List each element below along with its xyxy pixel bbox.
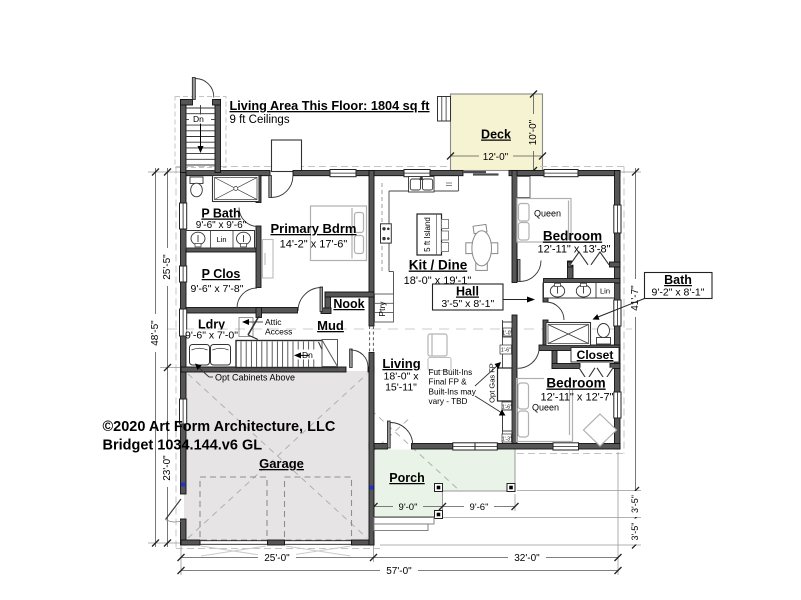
svg-text:57'-0": 57'-0" <box>386 566 412 577</box>
svg-text:Attic: Attic <box>265 317 282 327</box>
svg-text:Nook: Nook <box>333 297 364 311</box>
svg-text:Bedroom: Bedroom <box>546 376 605 391</box>
svg-text:5 ft Island: 5 ft Island <box>423 217 432 252</box>
svg-text:9'-0": 9'-0" <box>399 502 418 513</box>
svg-text:vary - TBD: vary - TBD <box>429 397 468 406</box>
svg-text:Lin: Lin <box>600 287 610 296</box>
svg-text:Opt Gas FP: Opt Gas FP <box>487 363 496 403</box>
svg-text:Garage: Garage <box>259 456 304 471</box>
svg-text:Bedroom: Bedroom <box>543 229 602 244</box>
svg-text:14'-2" x 17'-6": 14'-2" x 17'-6" <box>280 239 348 251</box>
svg-text:©2020 Art Form Architecture, L: ©2020 Art Form Architecture, LLC <box>103 419 336 435</box>
svg-text:3'-5" x 8'-1": 3'-5" x 8'-1" <box>441 298 494 310</box>
svg-text:Ptry: Ptry <box>377 301 387 317</box>
svg-text:41'-7": 41'-7" <box>630 285 641 311</box>
svg-text:Lin: Lin <box>216 235 226 244</box>
svg-text:25'-5": 25'-5" <box>162 254 173 280</box>
svg-text:Closet: Closet <box>577 348 614 362</box>
svg-text:32'-0": 32'-0" <box>514 553 540 564</box>
svg-text:Mud: Mud <box>317 318 344 333</box>
svg-text:P Clos: P Clos <box>202 267 241 281</box>
svg-text:Queen: Queen <box>532 403 559 413</box>
svg-text:1'-3": 1'-3" <box>502 437 512 443</box>
svg-text:15'-11": 15'-11" <box>385 382 417 394</box>
svg-text:1'-6": 1'-6" <box>501 348 511 354</box>
svg-text:Porch: Porch <box>389 471 424 485</box>
svg-text:Fut Built-Ins: Fut Built-Ins <box>429 368 473 377</box>
svg-text:Bridget 1034.144.v6 GL: Bridget 1034.144.v6 GL <box>103 438 263 454</box>
svg-text:9'-6": 9'-6" <box>470 502 489 513</box>
svg-text:Dn: Dn <box>193 114 204 124</box>
svg-text:9'-6" x 7'-8": 9'-6" x 7'-8" <box>191 283 244 295</box>
svg-text:9'-2" x 8'-1": 9'-2" x 8'-1" <box>652 287 705 299</box>
svg-text:12'-0": 12'-0" <box>483 152 509 163</box>
svg-text:9'-6" x 7'-0": 9'-6" x 7'-0" <box>185 330 238 342</box>
svg-text:Primary Bdrm: Primary Bdrm <box>271 221 357 236</box>
svg-text:Access: Access <box>265 327 292 337</box>
svg-text:48'-5": 48'-5" <box>150 320 161 346</box>
svg-text:Living Area This Floor: 1804 s: Living Area This Floor: 1804 sq ft <box>230 98 431 113</box>
svg-text:25'-0": 25'-0" <box>264 553 290 564</box>
svg-text:3'-5": 3'-5" <box>630 523 640 541</box>
svg-text:3'-5": 3'-5" <box>630 495 640 513</box>
svg-text:Deck: Deck <box>481 128 511 142</box>
svg-text:Queen: Queen <box>534 209 561 219</box>
svg-text:23'-0": 23'-0" <box>162 455 173 481</box>
svg-text:Living: Living <box>382 356 420 371</box>
svg-text:9 ft Ceilings: 9 ft Ceilings <box>230 114 290 126</box>
svg-text:12'-11" x 13'-8": 12'-11" x 13'-8" <box>538 244 611 256</box>
svg-text:1'-0": 1'-0" <box>502 331 512 337</box>
svg-text:P Bath: P Bath <box>201 207 240 221</box>
svg-text:Opt Cabinets Above: Opt Cabinets Above <box>215 373 295 383</box>
svg-text:Final FP &: Final FP & <box>429 378 468 387</box>
svg-text:Hall: Hall <box>456 285 479 299</box>
svg-text:9'-6" x 9'-6": 9'-6" x 9'-6" <box>196 220 247 231</box>
svg-text:12'-11" x 12'-7": 12'-11" x 12'-7" <box>541 392 614 404</box>
svg-text:Built-Ins may: Built-Ins may <box>429 387 477 396</box>
svg-text:Bath: Bath <box>664 273 692 287</box>
svg-text:Kit / Dine: Kit / Dine <box>409 258 468 273</box>
svg-text:10'-0": 10'-0" <box>528 119 539 145</box>
